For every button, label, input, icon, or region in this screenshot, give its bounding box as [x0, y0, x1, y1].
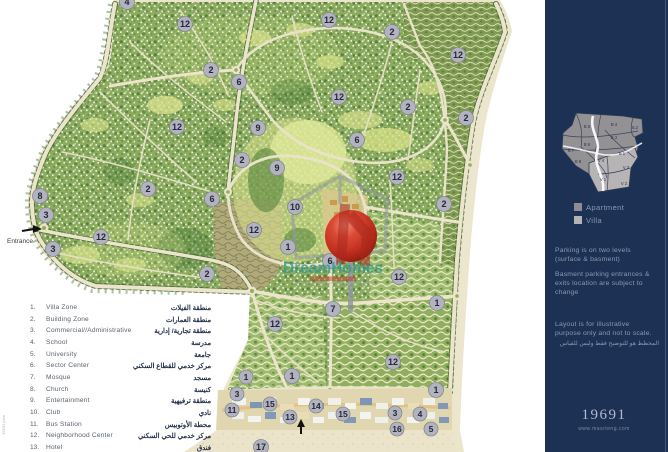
- svg-text:7: 7: [330, 304, 335, 314]
- svg-text:4: 4: [124, 0, 129, 7]
- svg-text:12: 12: [249, 225, 259, 235]
- svg-text:V 2: V 2: [621, 181, 628, 186]
- svg-text:DreamHomes: DreamHomes: [283, 260, 383, 277]
- svg-text:3: 3: [43, 210, 48, 220]
- svg-text:13: 13: [285, 412, 295, 422]
- svg-text:9: 9: [255, 123, 260, 133]
- svg-text:B 6: B 6: [584, 142, 591, 147]
- svg-text:6: 6: [354, 135, 359, 145]
- svg-text:12: 12: [172, 122, 182, 132]
- svg-text:12: 12: [392, 172, 402, 182]
- svg-text:2: 2: [441, 199, 446, 209]
- svg-text:6: 6: [236, 77, 241, 87]
- svg-text:1: 1: [289, 371, 294, 381]
- svg-text:1: 1: [285, 242, 290, 252]
- svg-text:3: 3: [50, 244, 55, 254]
- svg-text:12: 12: [394, 272, 404, 282]
- svg-text:6: 6: [209, 194, 214, 204]
- svg-text:2: 2: [239, 155, 244, 165]
- svg-text:3: 3: [235, 389, 240, 399]
- svg-text:11: 11: [228, 405, 237, 415]
- svg-text:4: 4: [418, 409, 423, 419]
- svg-text:2: 2: [405, 102, 410, 112]
- svg-text:V 3: V 3: [623, 165, 630, 170]
- svg-text:17: 17: [256, 442, 266, 452]
- svg-text:16: 16: [392, 424, 402, 434]
- svg-text:12: 12: [324, 15, 334, 25]
- svg-text:15: 15: [265, 399, 275, 409]
- svg-text:12: 12: [334, 92, 344, 102]
- svg-text:5: 5: [429, 424, 434, 434]
- svg-text:B 1: B 1: [619, 151, 626, 156]
- svg-text:5.2: 5.2: [632, 125, 638, 130]
- svg-text:12: 12: [96, 232, 106, 242]
- svg-text:V 4: V 4: [598, 158, 605, 163]
- svg-text:10: 10: [290, 202, 300, 212]
- svg-text:1: 1: [434, 298, 439, 308]
- svg-text:15: 15: [338, 409, 348, 419]
- svg-text:3: 3: [393, 408, 398, 418]
- svg-text:B 4: B 4: [611, 122, 618, 127]
- svg-text:1: 1: [244, 372, 249, 382]
- svg-text:2: 2: [208, 65, 213, 75]
- svg-text:12: 12: [388, 357, 398, 367]
- svg-text:12: 12: [270, 319, 280, 329]
- svg-text:B 7: B 7: [568, 148, 575, 153]
- svg-text:2: 2: [204, 269, 209, 279]
- svg-text:V 1: V 1: [600, 177, 607, 182]
- svg-text:2: 2: [145, 184, 150, 194]
- svg-text:8: 8: [37, 191, 42, 201]
- svg-text:9: 9: [274, 163, 279, 173]
- svg-text:12: 12: [180, 19, 190, 29]
- svg-text:B 8: B 8: [575, 159, 582, 164]
- svg-text:2: 2: [389, 27, 394, 37]
- svg-text:14: 14: [311, 401, 321, 411]
- svg-text:1: 1: [433, 385, 438, 395]
- svg-text:12: 12: [453, 50, 463, 60]
- svg-text:B 3: B 3: [611, 135, 618, 140]
- svg-text:2: 2: [463, 113, 468, 123]
- svg-text:Entrance: Entrance: [7, 238, 33, 245]
- svg-text:B 5: B 5: [584, 124, 591, 129]
